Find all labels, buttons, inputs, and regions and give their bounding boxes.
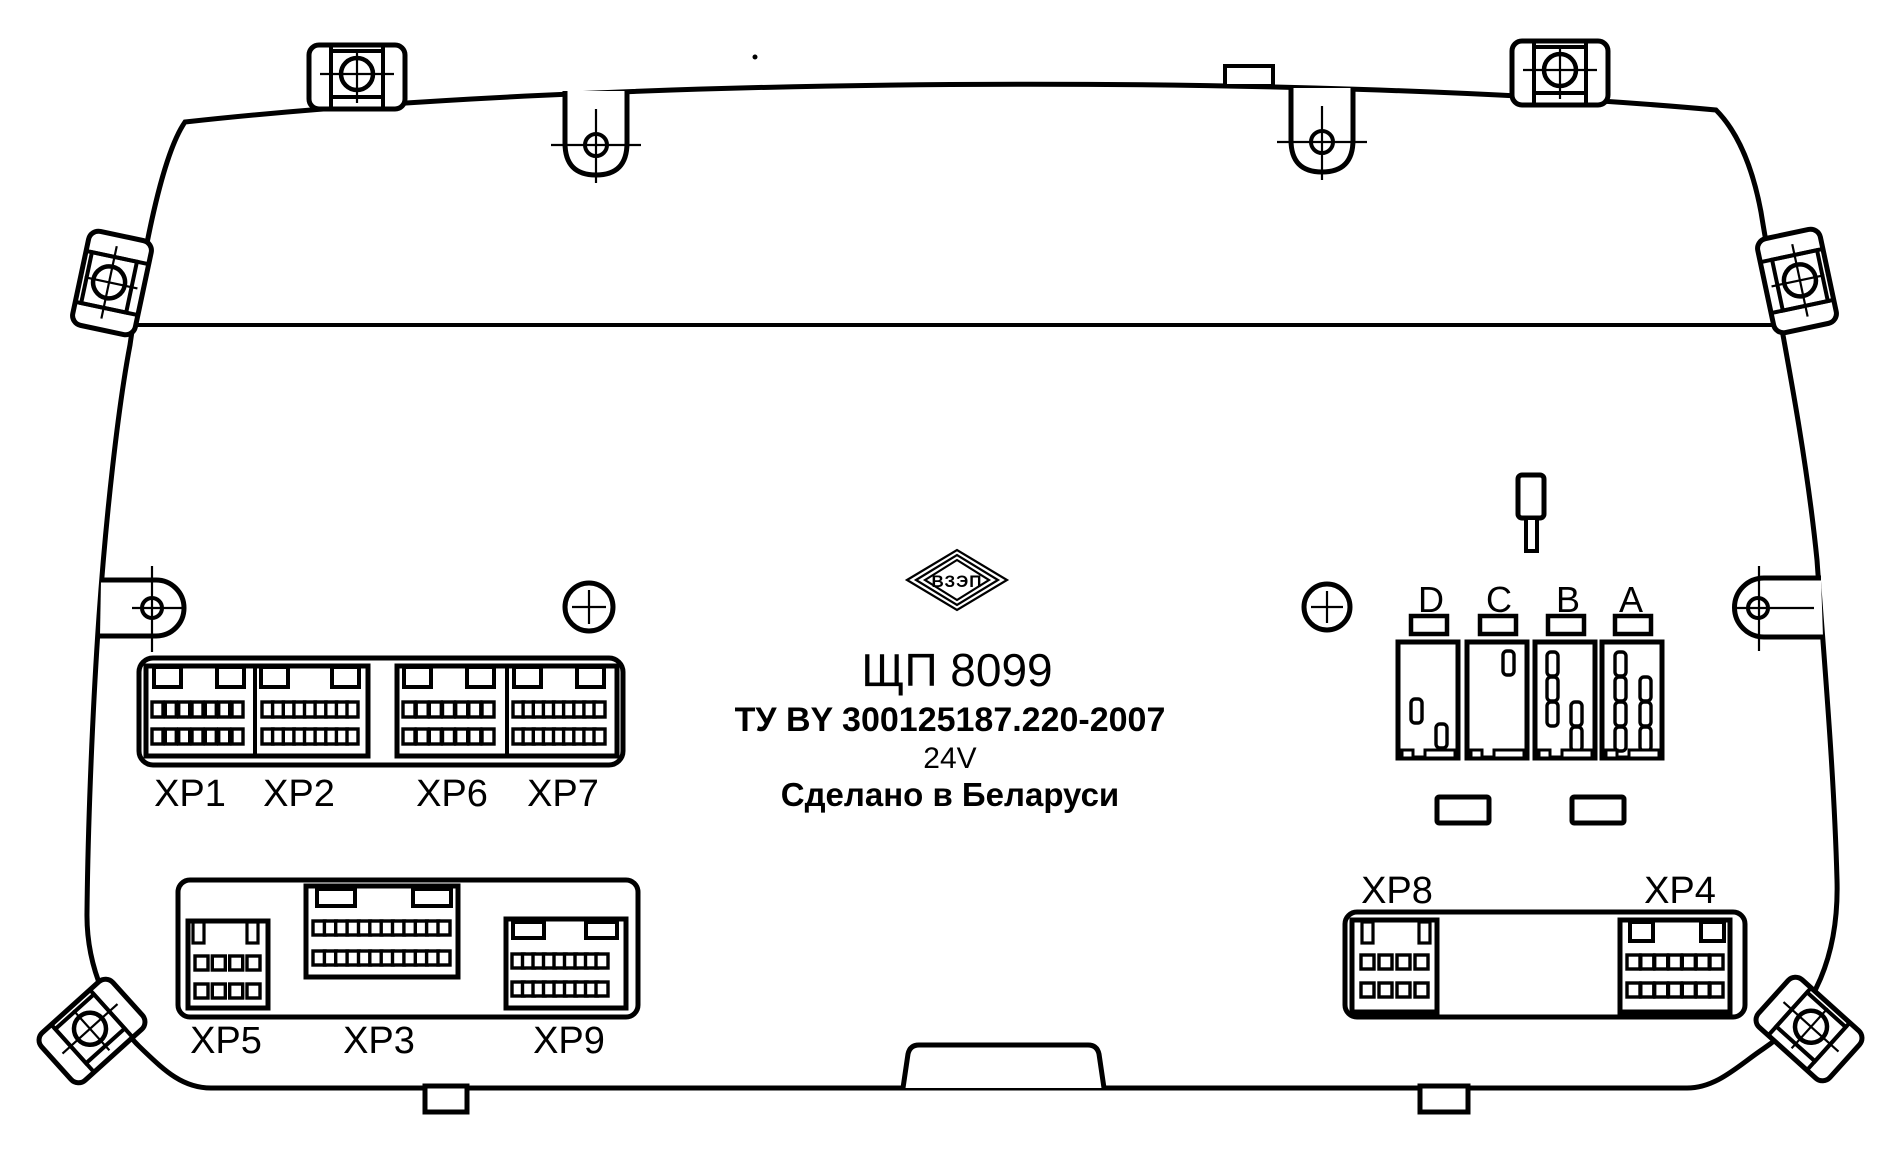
connector-xp4-pin [1669, 955, 1682, 969]
connector-xp4-pin [1627, 983, 1640, 997]
connector-xp6-pin [403, 702, 415, 717]
connector-xp1-tab [154, 667, 181, 687]
connector-xp8-tab [1419, 922, 1430, 943]
relay-slot-c-foot [1471, 750, 1482, 758]
connector-xp3-pin [438, 921, 450, 935]
connector-xp7-tab [577, 667, 604, 687]
label-xp6: XP6 [416, 773, 488, 815]
connector-xp4-pin [1627, 955, 1640, 969]
connector-xp4-pin [1655, 983, 1668, 997]
connector-xp1-pin [219, 729, 230, 744]
connector-xp6-pin [456, 729, 468, 744]
connector-xp6-pin [429, 729, 441, 744]
label-xp9: XP9 [533, 1020, 605, 1062]
relay-slot-d-contact [1411, 699, 1422, 723]
relay-slot-c-contact [1503, 651, 1514, 675]
connector-xp8-pin [1397, 983, 1410, 997]
relay-slot-b-body [1535, 642, 1595, 758]
relay-slot-d-foot [1402, 750, 1413, 758]
bottom-handle-recess [903, 1045, 1104, 1088]
relay-slot-b-foot [1562, 750, 1592, 758]
connector-xp6-pin [403, 729, 415, 744]
jumper-pad-right [1572, 797, 1624, 823]
relay-slot-d-foot [1425, 750, 1455, 758]
connector-xp8-pin [1415, 955, 1428, 969]
connector-xp8-pin [1379, 983, 1392, 997]
connector-xp6-pin [482, 729, 494, 744]
connector-xp5-tab [193, 922, 204, 943]
connector-xp4-pin [1641, 983, 1654, 997]
bottom-foot-right [1420, 1086, 1468, 1112]
connector-xp4-pin [1696, 955, 1709, 969]
connector-xp4-pin [1641, 955, 1654, 969]
connector-xp3-tab [317, 889, 355, 906]
relay-slot-c-foot [1494, 750, 1524, 758]
connector-xp4-pin [1655, 955, 1668, 969]
relay-slot-b-contact [1547, 652, 1558, 676]
connector-xp6-pin [482, 702, 494, 717]
connector-xp4-pin [1669, 983, 1682, 997]
connector-xp5-tab [247, 922, 258, 943]
connector-xp5-pin [195, 956, 208, 970]
connector-xp1-pin [179, 702, 190, 717]
connector-xp8-pin [1361, 955, 1374, 969]
connector-xp4-pin [1710, 955, 1723, 969]
standard-text: ТУ BY 300125187.220-2007 [735, 701, 1166, 739]
label-xp3: XP3 [343, 1020, 415, 1062]
connector-xp1-pin [192, 729, 203, 744]
label-xp5: XP5 [190, 1020, 262, 1062]
relay-slot-b-contact [1571, 702, 1582, 726]
connector-xp3-pin [438, 951, 450, 965]
label-xp2: XP2 [263, 773, 335, 815]
connector-xp2-tab [261, 667, 288, 687]
screw-right [1304, 584, 1350, 630]
connector-xp1-pin [152, 702, 163, 717]
relay-slot-b-contact [1547, 702, 1558, 726]
relay-slot-a-contact [1640, 727, 1651, 751]
connector-xp4-pin [1682, 983, 1695, 997]
label-slot-b: B [1556, 579, 1580, 620]
label-slot-a: A [1619, 579, 1643, 620]
relay-slot-a-foot [1629, 750, 1659, 758]
connector-xp4-pin [1710, 983, 1723, 997]
connector-xp1-pin [192, 702, 203, 717]
connector-xp5-pin [247, 956, 260, 970]
connector-xp5-pin [212, 984, 225, 998]
label-slot-c: C [1486, 579, 1512, 620]
connector-xp4-tab [1701, 922, 1724, 941]
connector-xp7-tab [514, 667, 541, 687]
connector-xp6-pin [416, 702, 428, 717]
top-edge-mark [753, 55, 758, 60]
relay-slot-a-contact [1615, 702, 1626, 726]
label-xp8: XP8 [1361, 870, 1433, 912]
connector-xp1-pin [165, 729, 176, 744]
label-xp1: XP1 [154, 773, 226, 815]
relay-slot-c-body [1467, 642, 1527, 758]
connector-xp6-pin [469, 729, 481, 744]
connector-xp6-pin [456, 702, 468, 717]
connector-xp8-pin [1397, 955, 1410, 969]
relay-slot-a-foot [1606, 750, 1617, 758]
bottom-foot-left [425, 1086, 467, 1112]
connector-xp2-pin [347, 702, 358, 717]
connector-xp1-pin [219, 702, 230, 717]
connector-xp4-tab [1630, 922, 1653, 941]
voltage-text: 24V [923, 742, 976, 775]
relay-slot-b-foot [1539, 750, 1550, 758]
connector-xp5-pin [195, 984, 208, 998]
connector-xp8-pin [1379, 955, 1392, 969]
relay-slot-a-contact [1615, 727, 1626, 751]
label-xp7: XP7 [527, 773, 599, 815]
connector-xp5-pin [247, 984, 260, 998]
connector-xp8-pin [1415, 983, 1428, 997]
connector-xp8-tab [1362, 922, 1373, 943]
relay-slot-a-contact [1615, 652, 1626, 676]
connector-xp9-tab [586, 922, 617, 938]
made-in-text: Сделано в Беларуси [781, 776, 1119, 813]
jumper-pad-left [1437, 797, 1489, 823]
panel-rear-view-diagram: ВЗЭП ЩП 8099 ТУ BY 300125187.220-2007 24… [0, 0, 1901, 1150]
connector-xp7-pin [594, 702, 605, 717]
logo-text: ВЗЭП [931, 572, 982, 591]
relay-slot-b-contact [1571, 727, 1582, 751]
connector-xp6-pin [416, 729, 428, 744]
mount-bracket-top-right [1512, 41, 1608, 105]
relay-slot-d-body [1398, 642, 1458, 758]
connector-xp5-pin [230, 984, 243, 998]
connector-xp4-pin [1696, 983, 1709, 997]
label-slot-d: D [1418, 579, 1444, 620]
connector-xp6-pin [443, 702, 455, 717]
relay-slot-a-body [1602, 642, 1662, 758]
connector-xp6-tab [467, 667, 494, 687]
connector-xp5-pin [230, 956, 243, 970]
connector-xp1-pin [179, 729, 190, 744]
connector-xp6-pin [429, 702, 441, 717]
connector-xp1-tab [217, 667, 244, 687]
connector-xp2-pin [347, 729, 358, 744]
screw-left [565, 583, 613, 631]
connector-xp1-pin [165, 702, 176, 717]
connector-xp2-tab [332, 667, 359, 687]
connector-xp3-tab [413, 889, 451, 906]
label-xp4: XP4 [1644, 870, 1716, 912]
connector-xp1-pin [205, 729, 216, 744]
relay-slot-b-contact [1547, 677, 1558, 701]
connector-xp1-pin [152, 729, 163, 744]
relay-slot-a-contact [1640, 677, 1651, 701]
connector-xp9-tab [513, 922, 544, 938]
connector-xp9-pin [596, 982, 608, 996]
mount-bracket-top-left [309, 45, 405, 109]
connector-xp1-pin [232, 702, 243, 717]
connector-xp6-pin [443, 729, 455, 744]
connector-xp8-pin [1361, 983, 1374, 997]
connector-xp9-pin [596, 954, 608, 968]
connector-xp4-pin [1682, 955, 1695, 969]
model-text: ЩП 8099 [861, 644, 1052, 696]
top-edge-rib [1225, 66, 1273, 86]
relay-slot-a-contact [1640, 702, 1651, 726]
connector-xp1-pin [232, 729, 243, 744]
connector-xp7-pin [594, 729, 605, 744]
relay-slot-a-contact [1615, 677, 1626, 701]
connector-xp5-pin [212, 956, 225, 970]
connector-xp6-pin [469, 702, 481, 717]
panel-rear-view: ВЗЭП ЩП 8099 ТУ BY 300125187.220-2007 24… [0, 0, 1901, 1150]
connector-xp1-pin [205, 702, 216, 717]
connector-xp6-tab [404, 667, 431, 687]
relay-slot-d-contact [1436, 724, 1447, 748]
